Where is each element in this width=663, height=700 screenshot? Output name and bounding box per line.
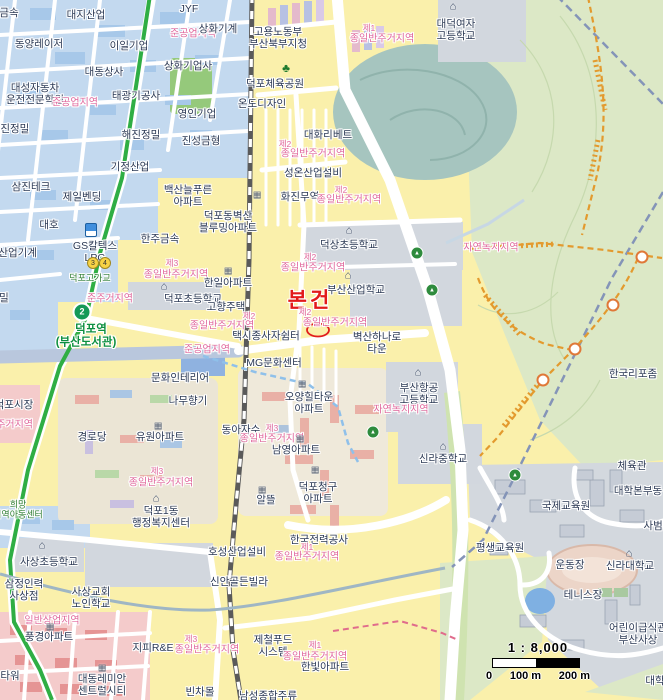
school-icon: ⌂ (440, 442, 447, 453)
apartment-icon: ▦ (298, 380, 307, 389)
school-icon: ⌂ (450, 2, 457, 13)
map-label: 타워 (0, 670, 19, 682)
map-label: 알뜰 (256, 494, 275, 506)
map-label: 어린이급식관부산사상 (609, 622, 663, 646)
map-label: 상화기업사 (164, 60, 212, 72)
map-label: 테니스장 (564, 589, 603, 601)
map-label: 제3 (151, 467, 164, 477)
map-label: 기정산업 (111, 161, 150, 173)
map-label: 자연녹지지역 (373, 404, 428, 416)
apartment-icon: ▦ (46, 623, 55, 632)
apartment-icon: ▦ (224, 267, 233, 276)
map-label: 남영아파트 (272, 444, 320, 456)
school-icon: ⌂ (39, 541, 46, 552)
map-label: 밀 (0, 292, 9, 304)
trail-marker: ▲ (426, 284, 439, 297)
map-label: 대덕여자고등학교 (437, 18, 476, 42)
scale-ticks: 0 100 m 200 m (486, 670, 590, 682)
map-label: 희망지역아동센터 (0, 500, 43, 521)
map-label: 종일반주거지역 (303, 317, 367, 329)
map-label: 풍경아파트 (25, 631, 73, 643)
metro-line2-badge: 2 (73, 303, 92, 322)
map-label: 대학 (645, 675, 663, 687)
map-label: 종일반주거지역 (317, 194, 381, 206)
spring-marker (636, 251, 649, 264)
school-icon: ⌂ (415, 368, 422, 379)
map-label: 준공업지역 (184, 344, 230, 356)
map-label: 고향주택 (207, 301, 246, 313)
spring-marker (569, 343, 582, 356)
map-label: 금진정밀 (0, 123, 29, 135)
map-label: 종일반주거지역 (129, 477, 193, 489)
apartment-icon: ▦ (98, 664, 107, 673)
map-label: 백산늘푸른아파트 (164, 184, 212, 208)
map-label: 대화리베트 (304, 129, 352, 141)
map-label: 고용노동부부산북부지청 (249, 26, 307, 50)
spring-marker (537, 374, 550, 387)
map-label: 대학본부동 (614, 485, 662, 497)
map-label: 종일반주거지역 (144, 269, 208, 281)
map-label: 나무향기 (169, 395, 208, 407)
scale-tick-100: 100 m (510, 670, 541, 682)
scale-tick-200: 200 m (559, 670, 590, 682)
map-label: 대지산업 (67, 9, 106, 21)
map-label: 덕포1동행정복지센터 (132, 505, 190, 529)
map-label: 준주거지역 (87, 293, 133, 305)
map-label: 금속 (0, 7, 19, 19)
apartment-icon: ▦ (253, 191, 262, 200)
map-label: 종일반주거지역 (350, 33, 414, 45)
map-label: 덕포고가교 (69, 273, 110, 283)
gas-icon (85, 223, 97, 237)
map-label: 준주거지역 (0, 419, 33, 431)
map-label: 신라중학교 (419, 453, 467, 465)
map-label: 한일아파트 (204, 277, 252, 289)
map-label: 덕포시장 (0, 399, 33, 411)
map-canvas[interactable]: 금속대지산업JYF동양레이저이일기업준공업지역상화기계상화기업사대동상사대성자동… (0, 0, 663, 700)
map-label: 삼정인력사상점 (5, 578, 44, 602)
apartment-icon: ▦ (311, 466, 320, 475)
map-label: 지피R&E (133, 642, 174, 654)
office-icon: ⌂ (153, 494, 160, 505)
map-label: 오양힐타운아파트 (285, 391, 333, 415)
map-label: 종일반주거지역 (281, 262, 345, 274)
map-label: 남성종합주류 (239, 690, 297, 700)
station-name-sub: (부산도서관) (56, 336, 117, 349)
map-label: 벽산하나로타운 (353, 331, 401, 355)
map-label: 이일기업 (110, 40, 149, 52)
map-label: 자연녹지지역 (463, 242, 518, 254)
map-label: JYF (180, 3, 199, 15)
map-label: 덕포동벽산블루밍아파트 (199, 210, 257, 234)
school-icon: ⌂ (161, 282, 168, 293)
trail-marker: ▲ (367, 426, 380, 439)
map-label: 부산산업학교 (327, 284, 385, 296)
route-badge: 3 (87, 257, 99, 269)
map-label: 신안골든빌라 (210, 576, 268, 588)
map-label: 동양레이저 (15, 38, 63, 50)
map-label: 해진정밀 (122, 129, 161, 141)
map-label: 운동장 (556, 559, 585, 571)
school-icon: ⌂ (626, 549, 633, 560)
map-label: 사범대 (644, 520, 663, 532)
map-label: MG문화센터 (246, 357, 302, 369)
map-labels-layer: 금속대지산업JYF동양레이저이일기업준공업지역상화기계상화기업사대동상사대성자동… (0, 0, 663, 700)
school-icon: ⌂ (345, 271, 352, 282)
map-label: 제일벤딩 (63, 191, 102, 203)
map-label: 체육관 (618, 460, 647, 472)
map-label: 평생교육원 (476, 542, 524, 554)
trail-marker: ▲ (509, 469, 522, 482)
map-label: 종일반주거지역 (275, 551, 339, 563)
map-label: 호성산업설비 (208, 546, 266, 558)
map-label: 제1 (309, 641, 322, 651)
map-scale: 1 : 8,000 0 100 m 200 m (486, 640, 590, 682)
map-label: 삼진테크 (12, 181, 51, 193)
map-label: 종일반주거지역 (175, 644, 239, 656)
map-label: 덕포체육공원 (246, 78, 304, 90)
map-label: 대호 (39, 219, 58, 231)
spring-marker (607, 299, 620, 312)
map-label: 대동레미안센트럴시티 (78, 673, 126, 697)
map-label: 화진무역 (281, 191, 320, 203)
scale-ratio: 1 : 8,000 (486, 640, 590, 655)
map-label: 덕포청구아파트 (299, 481, 338, 505)
map-label: 진성금형 (182, 135, 221, 147)
map-label: 사상초등학교 (20, 556, 78, 568)
map-label: 한주금속 (141, 233, 180, 245)
map-label: 경로당 (78, 431, 107, 443)
map-label: 상화기계 (199, 23, 238, 35)
apartment-icon: ▦ (296, 435, 305, 444)
map-label: 제3 (166, 259, 179, 269)
map-label: 한국리포좀 (609, 368, 657, 380)
map-label: 동양산업기계 (0, 247, 37, 259)
route-badge: 4 (99, 257, 111, 269)
map-label: 영인기업 (178, 108, 217, 120)
map-label: 한빛아파트 (301, 661, 349, 673)
map-label: 택시종사자쉼터 (232, 330, 300, 342)
scale-tick-0: 0 (486, 670, 492, 682)
map-label: 한국전력공사 (290, 534, 348, 546)
map-label: 유원아파트 (136, 431, 184, 443)
trail-marker: ▲ (411, 247, 424, 260)
map-label: 온도디자인 (238, 98, 286, 110)
apartment-icon: ▦ (258, 486, 267, 495)
map-label: 문화인테리어 (151, 372, 209, 384)
map-label: 대동상사 (85, 66, 124, 78)
school-icon: ⌂ (346, 226, 353, 237)
tree-icon: ♣ (282, 62, 290, 74)
apartment-icon: ▦ (154, 422, 163, 431)
map-label: 사상교회노인학교 (72, 586, 111, 610)
station-name: 덕포역 (75, 323, 107, 336)
map-label: 신라대학교 (606, 560, 654, 572)
map-label: 태광기공사 (112, 90, 160, 102)
map-label: 빈차몰 (186, 686, 215, 698)
map-label: 덕상초등학교 (320, 239, 378, 251)
map-label: 국제교육원 (542, 500, 590, 512)
map-label: 준공업지역 (52, 97, 98, 109)
scale-bar (492, 658, 580, 668)
map-label: 종일반주거지역 (281, 148, 345, 160)
map-label: 성온산업설비 (284, 167, 342, 179)
map-label: 부산항공고등학교 (400, 382, 439, 406)
